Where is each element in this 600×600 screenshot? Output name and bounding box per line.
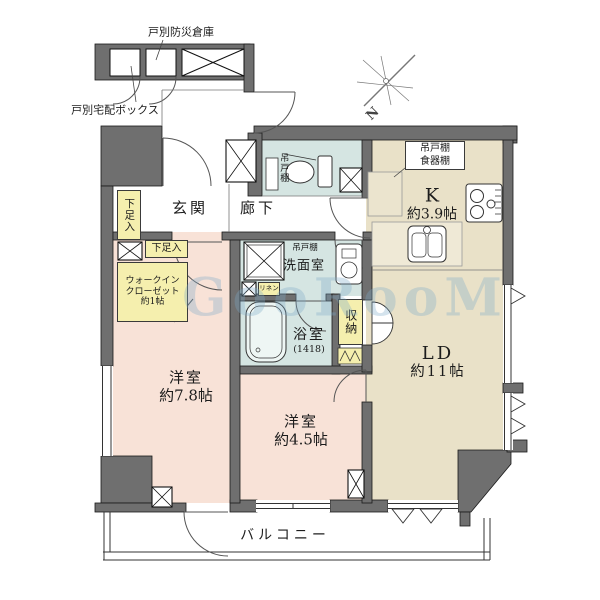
hallway-label: 廊下 (240, 200, 276, 218)
counter-hatch (338, 348, 362, 364)
kitchen-size: 約3.9帖 (407, 207, 457, 224)
wic-line2: クローゼット (125, 287, 179, 297)
linen-label: リネン (258, 282, 280, 296)
walk-in-closet: ウォークイン クローゼット 約1帖 (117, 262, 188, 322)
washroom-label: 洗面室 (283, 258, 325, 273)
kitchen-name: K (407, 185, 457, 207)
wic-line1: ウォークイン (125, 276, 179, 286)
bedroom-second-label: 洋室 約4.5帖 (274, 413, 328, 448)
bedroom-main-name: 洋室 (159, 369, 213, 387)
compass-icon (357, 55, 415, 106)
bathroom-size: (1418) (293, 344, 325, 355)
closet-label: 収納 (338, 299, 363, 345)
stove-icon (466, 184, 502, 222)
bathroom-label: 浴室 (1418) (293, 327, 325, 355)
bedroom-second-name: 洋室 (274, 413, 328, 431)
balcony-label: バルコニー (240, 528, 330, 545)
bedroom-second-size: 約4.5帖 (274, 431, 328, 449)
washbasin-icon (336, 244, 362, 284)
genkan-label: 玄関 (172, 200, 208, 218)
annex-disaster-label: 戸別防災倉庫 (148, 27, 214, 40)
kitchen-cabinet-label: 吊戸棚 食器棚 (405, 141, 465, 170)
living-label: LD 約11帖 (410, 343, 465, 381)
kitchen-label: K 約3.9帖 (407, 185, 457, 224)
kitchen-cabinet-line2: 食器棚 (420, 156, 450, 167)
annex-delivery-label: 戸別宅配ボックス (71, 105, 159, 118)
bathtub-icon (246, 302, 286, 362)
living-size: 約11帖 (410, 364, 465, 381)
bathroom-name: 浴室 (293, 327, 325, 344)
toilet-cabinet-label: 吊戸棚 (278, 153, 289, 183)
living-name: LD (410, 343, 465, 364)
floorplan-linework (0, 0, 600, 600)
floor-plan: 戸別防災倉庫 戸別宅配ボックス N 玄関 廊下 吊戸棚 吊戸棚 食器棚 K 約3… (0, 0, 600, 600)
kitchen-cabinet-line1: 吊戸棚 (420, 143, 450, 154)
washroom-cabinet-label: 吊戸棚 (292, 243, 318, 253)
shoe-box-front: 下足入 (145, 240, 188, 258)
shoe-box-left: 下足入 (117, 190, 141, 240)
sink-icon (408, 226, 446, 262)
bedroom-main-size: 約7.8帖 (159, 387, 213, 405)
bedroom-main-label: 洋室 約7.8帖 (159, 369, 213, 404)
wic-line3: 約1帖 (141, 297, 165, 307)
